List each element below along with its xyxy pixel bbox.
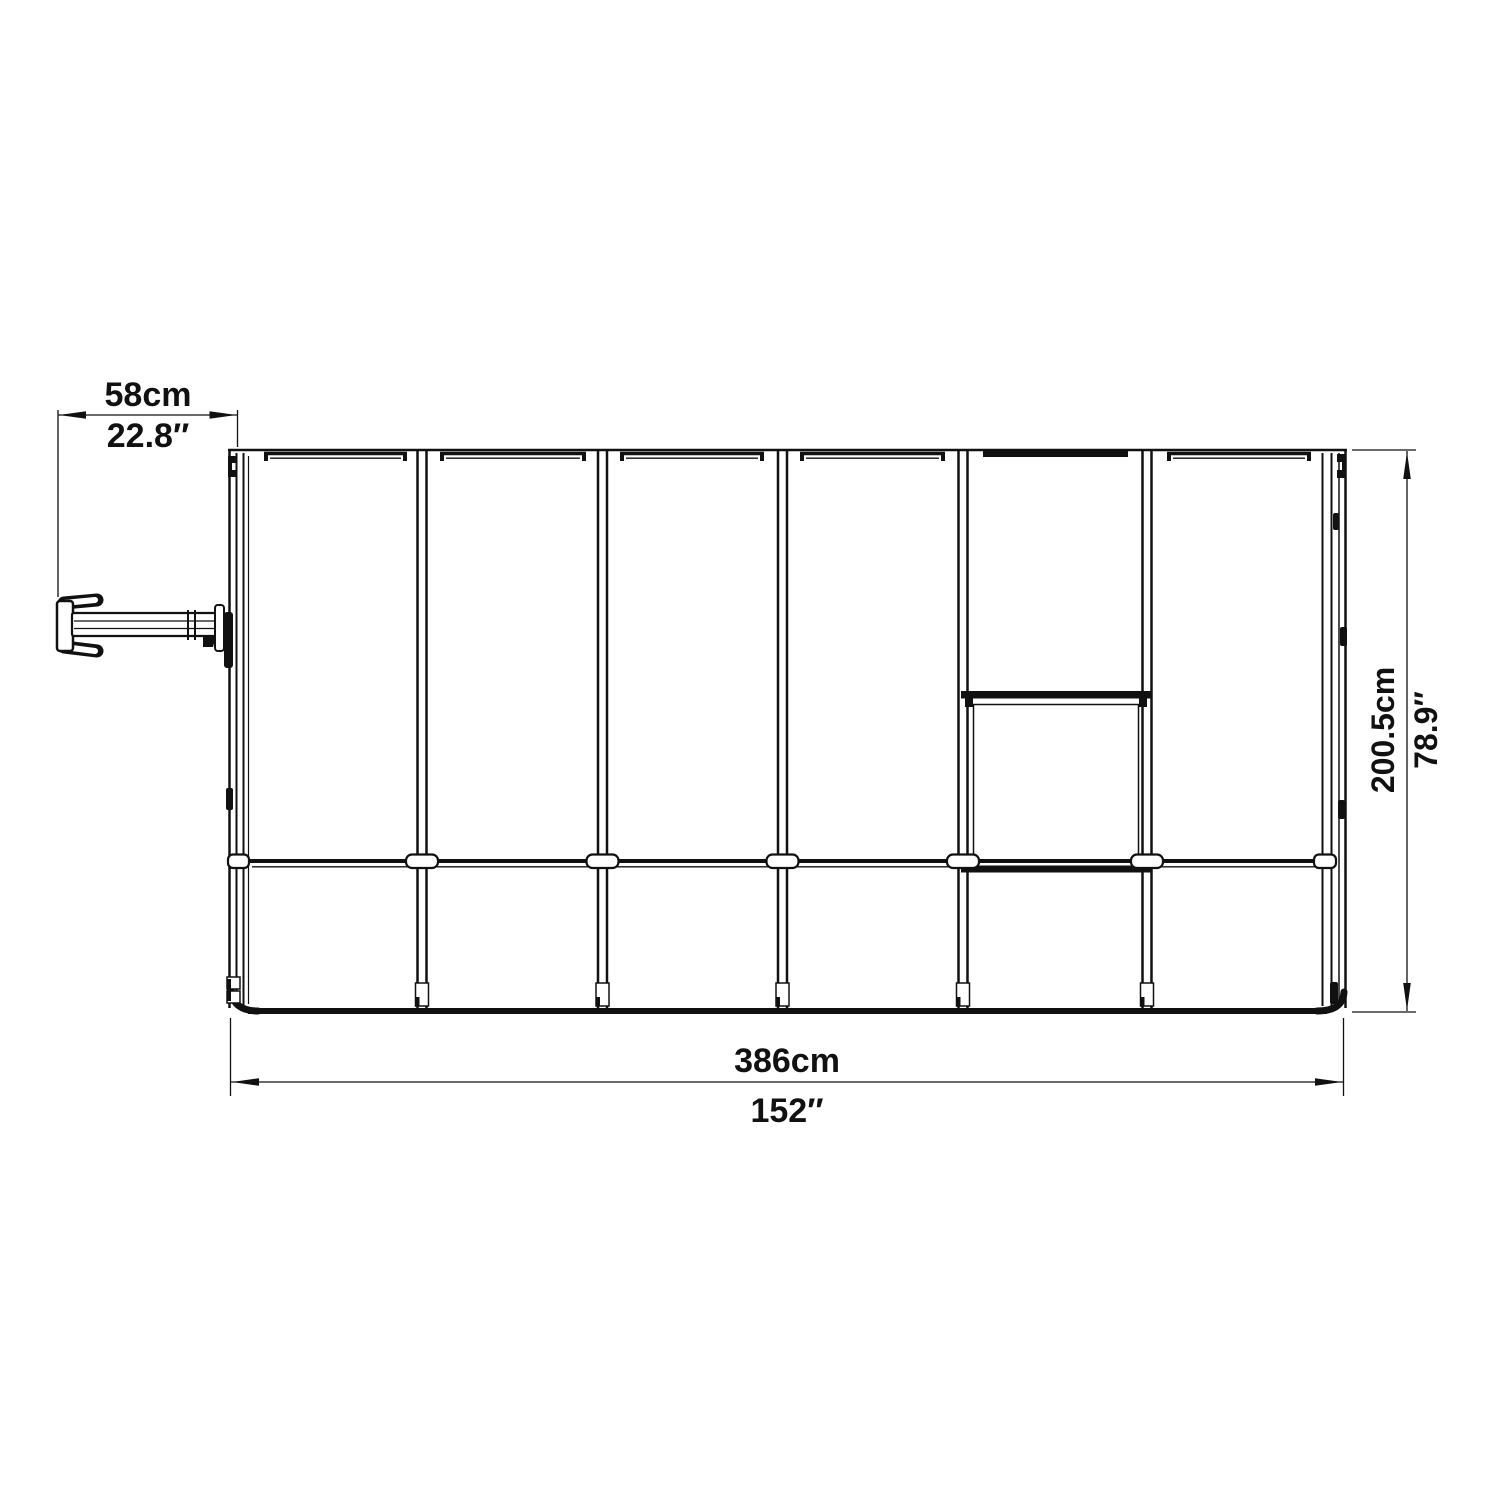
frame bbox=[224, 450, 1347, 1011]
right-dim-metric-label: 200.5cm bbox=[1365, 667, 1401, 793]
side-window bbox=[961, 691, 1151, 873]
right-dim-arrow-bottom bbox=[1403, 983, 1411, 1010]
handle-mount-bracket bbox=[224, 612, 233, 668]
right-dim-arrow-top bbox=[1403, 452, 1411, 479]
left-end-frame bbox=[224, 450, 249, 1008]
greenhouse-side-elevation-drawing: 58cm 22.8″ 200.5cm 78.9″ 386cm 152″ bbox=[0, 0, 1500, 1500]
horizontal-rail bbox=[228, 855, 1336, 869]
top-dim-metric-label: 58cm bbox=[105, 376, 192, 414]
right-frame-clip-upper bbox=[1333, 513, 1339, 530]
wall-post-5 bbox=[1143, 451, 1152, 1009]
roof-strip-bay1 bbox=[264, 452, 407, 461]
right-frame-clip-lower bbox=[1338, 800, 1345, 819]
top-dim-arrow-right bbox=[210, 411, 237, 419]
left-frame-clip bbox=[226, 788, 233, 810]
bottom-dim-metric-label: 386cm bbox=[734, 1042, 840, 1080]
bottom-dim-imperial-label: 152″ bbox=[750, 1092, 823, 1130]
right-end-frame bbox=[1323, 450, 1348, 1008]
door-handle bbox=[57, 600, 224, 651]
roof-strip-bay3 bbox=[620, 452, 764, 461]
roof-strip-bay2 bbox=[440, 452, 586, 461]
roof-vent-bar bbox=[983, 450, 1128, 458]
right-frame-clip-bottom bbox=[1330, 982, 1338, 1004]
handle-bar bbox=[72, 613, 222, 636]
top-dim-imperial-label: 22.8″ bbox=[107, 417, 189, 455]
window-header-bar bbox=[961, 691, 1151, 699]
roof-strip-bay6 bbox=[1167, 452, 1311, 461]
roof-strip-bay4 bbox=[800, 452, 945, 461]
wall-post-1 bbox=[418, 451, 427, 1009]
handle-end-plate bbox=[215, 605, 224, 651]
wall-post-4 bbox=[959, 451, 968, 1009]
wall-post-3 bbox=[778, 451, 787, 1009]
wall-posts bbox=[418, 451, 1152, 1009]
right-dim-imperial-label: 78.9″ bbox=[1408, 691, 1444, 769]
handle-claw-spine bbox=[57, 601, 73, 651]
bottom-dim-arrow-right bbox=[1315, 1078, 1342, 1086]
structure bbox=[57, 450, 1347, 1012]
top-dim-arrow-left bbox=[59, 411, 86, 419]
bottom-dim-arrow-left bbox=[232, 1078, 259, 1086]
post-bottom-clips bbox=[416, 983, 1154, 1006]
wall-post-2 bbox=[598, 451, 607, 1009]
diagram-canvas: 58cm 22.8″ 200.5cm 78.9″ 386cm 152″ bbox=[0, 0, 1500, 1500]
right-frame-clip-mid bbox=[1340, 627, 1347, 646]
